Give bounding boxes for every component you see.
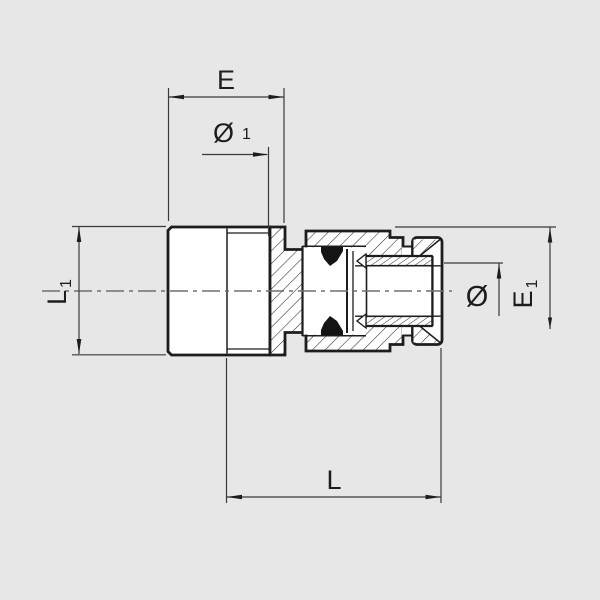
drawing-canvas: E Ø1 L1 Ø [0, 0, 600, 600]
dim-d-label: Ø [466, 281, 489, 313]
fitting-section-drawing: E Ø1 L1 Ø [0, 0, 600, 600]
thread-band-bottom [366, 317, 432, 327]
thread-band-top [366, 256, 432, 266]
dim-l-label: L [326, 465, 341, 495]
dim-e-label: E [217, 65, 235, 95]
